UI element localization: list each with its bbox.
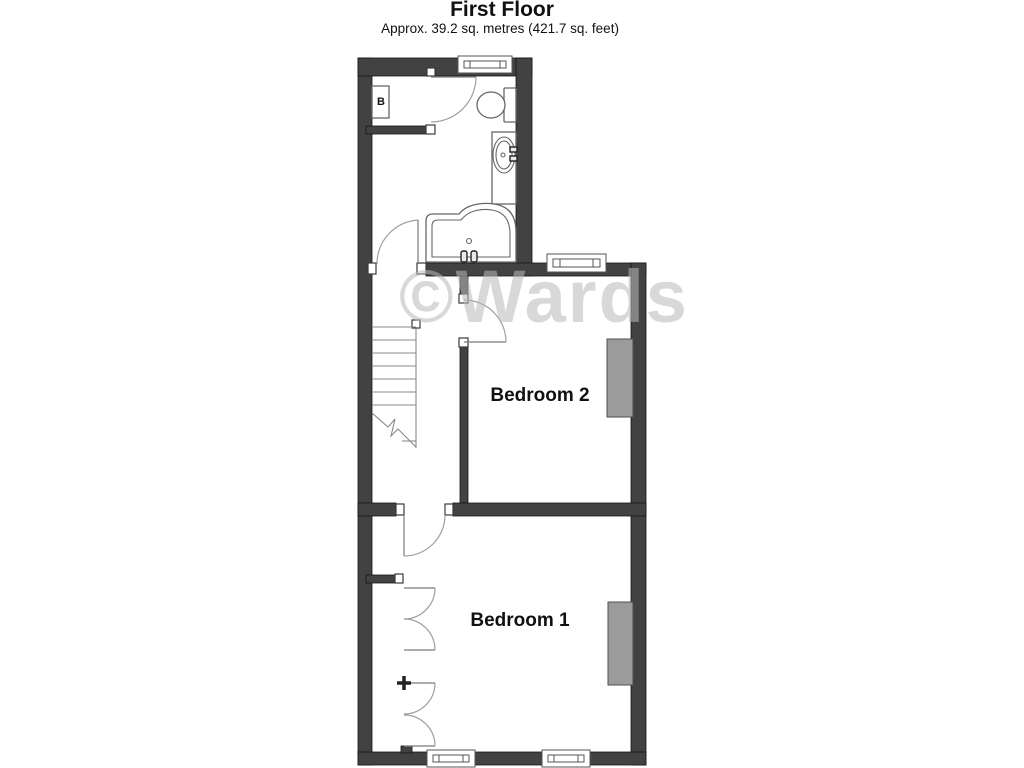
- wall-left: [358, 58, 372, 765]
- floorplan-drawing: [0, 0, 1024, 768]
- window-bedroom1-left: [427, 750, 475, 767]
- wall-divider-right: [453, 503, 646, 516]
- door-bedroom1: [404, 515, 445, 556]
- watermark: ©Wards: [399, 254, 689, 339]
- hinge-cross-icon: [397, 676, 411, 690]
- wall-cupboard-stub: [366, 126, 426, 134]
- wall-divider-left: [358, 503, 396, 516]
- door-bathroom-top: [431, 77, 476, 122]
- wall-upper-right: [516, 58, 532, 276]
- toilet: [477, 88, 516, 122]
- chimney-breast-bedroom1: [608, 602, 633, 685]
- page-subtitle: Approx. 39.2 sq. metres (421.7 sq. feet): [381, 21, 619, 36]
- chimney-breast-bedroom2: [607, 339, 633, 417]
- stair-break-line: [372, 413, 416, 447]
- basin-tap: [510, 147, 517, 152]
- room-label-bedroom1: Bedroom 1: [470, 610, 569, 632]
- page-title: First Floor: [450, 0, 554, 20]
- wall-wardrobe-stub: [366, 575, 395, 583]
- room-label-bedroom2: Bedroom 2: [490, 385, 589, 407]
- basin-tap: [510, 156, 517, 161]
- floorplan-page: First Floor Approx. 39.2 sq. metres (421…: [0, 0, 1024, 768]
- wardrobe-doors: [397, 588, 435, 746]
- stairs: [372, 320, 420, 448]
- window-bedroom1-right: [542, 750, 590, 767]
- wall-landing-bedroom2: [460, 347, 468, 503]
- wall-wardrobe-bottom-stub: [401, 746, 412, 753]
- boiler-label: B: [377, 96, 385, 108]
- basin: [492, 132, 517, 204]
- wall-bottom: [358, 752, 646, 765]
- window-top: [458, 56, 512, 73]
